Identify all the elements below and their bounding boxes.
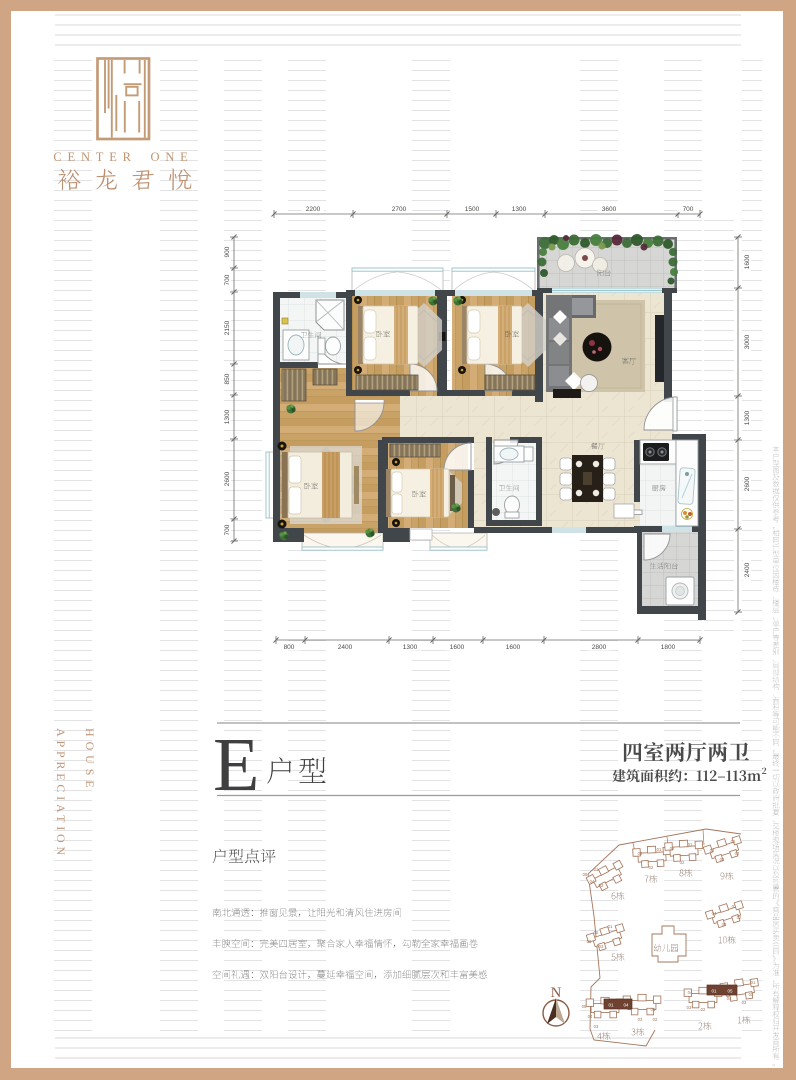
svg-text:01: 01 [732, 904, 737, 909]
svg-text:2700: 2700 [392, 206, 407, 213]
svg-text:04: 04 [590, 879, 595, 884]
svg-text:01: 01 [651, 1007, 656, 1012]
svg-text:700: 700 [683, 206, 694, 213]
svg-text:700: 700 [224, 274, 231, 285]
svg-text:2150: 2150 [224, 320, 231, 335]
svg-text:04: 04 [688, 990, 693, 995]
svg-text:04: 04 [727, 996, 732, 1001]
svg-text:1600: 1600 [744, 254, 751, 269]
svg-text:800: 800 [284, 644, 295, 651]
svg-text:HOUSE: HOUSE [83, 728, 97, 793]
svg-text:E: E [213, 723, 259, 807]
svg-text:N: N [551, 985, 562, 1001]
svg-text:1300: 1300 [512, 206, 527, 213]
svg-text:04: 04 [623, 1003, 629, 1008]
svg-text:900: 900 [224, 246, 231, 257]
svg-text:3000: 3000 [744, 334, 751, 349]
svg-text:05: 05 [582, 1004, 587, 1009]
svg-text:02: 02 [701, 1007, 706, 1012]
svg-text:850: 850 [224, 373, 231, 384]
svg-text:03: 03 [638, 1017, 643, 1022]
svg-text:04: 04 [710, 848, 715, 853]
svg-text:03: 03 [720, 857, 725, 862]
svg-text:2400: 2400 [338, 644, 353, 651]
svg-text:03: 03 [599, 883, 604, 888]
svg-text:04: 04 [712, 911, 717, 916]
svg-text:2600: 2600 [744, 476, 751, 491]
svg-text:02: 02 [680, 860, 685, 865]
svg-text:03: 03 [742, 1000, 747, 1005]
svg-text:05: 05 [727, 989, 733, 994]
svg-text:01: 01 [751, 980, 756, 985]
svg-text:2800: 2800 [592, 644, 607, 651]
svg-text:2200: 2200 [306, 206, 321, 213]
svg-text:02: 02 [749, 992, 754, 997]
svg-text:2600: 2600 [224, 471, 231, 486]
svg-text:01: 01 [731, 839, 736, 844]
svg-text:03: 03 [599, 944, 604, 949]
svg-text:1300: 1300 [224, 409, 231, 424]
svg-text:01: 01 [657, 847, 662, 852]
svg-text:03: 03 [638, 851, 643, 856]
svg-text:06: 06 [583, 872, 588, 877]
svg-text:1300: 1300 [403, 644, 418, 651]
svg-text:CENTER ONE: CENTER ONE [53, 150, 193, 164]
svg-text:1500: 1500 [465, 206, 480, 213]
svg-text:03: 03 [722, 922, 727, 927]
svg-text:02: 02 [653, 1017, 658, 1022]
svg-text:1300: 1300 [744, 410, 751, 425]
svg-text:02: 02 [649, 865, 654, 870]
svg-text:01: 01 [688, 842, 693, 847]
svg-text:2400: 2400 [744, 562, 751, 577]
svg-text:1600: 1600 [450, 644, 465, 651]
svg-text:04: 04 [588, 1014, 593, 1019]
svg-text:1800: 1800 [661, 644, 676, 651]
svg-text:02: 02 [735, 851, 740, 856]
svg-text:03: 03 [687, 1005, 692, 1010]
svg-text:APPRECIATION: APPRECIATION [54, 728, 68, 859]
svg-text:02: 02 [737, 915, 742, 920]
svg-text:3600: 3600 [602, 206, 617, 213]
svg-text:01: 01 [608, 924, 613, 929]
svg-text:01: 01 [594, 867, 599, 872]
svg-text:06: 06 [587, 939, 592, 944]
svg-text:01: 01 [711, 989, 717, 994]
svg-text:05: 05 [594, 930, 599, 935]
svg-text:700: 700 [224, 524, 231, 535]
svg-text:1600: 1600 [506, 644, 521, 651]
svg-text:03: 03 [670, 846, 675, 851]
svg-text:03: 03 [594, 1024, 599, 1029]
svg-text:01: 01 [608, 1003, 614, 1008]
